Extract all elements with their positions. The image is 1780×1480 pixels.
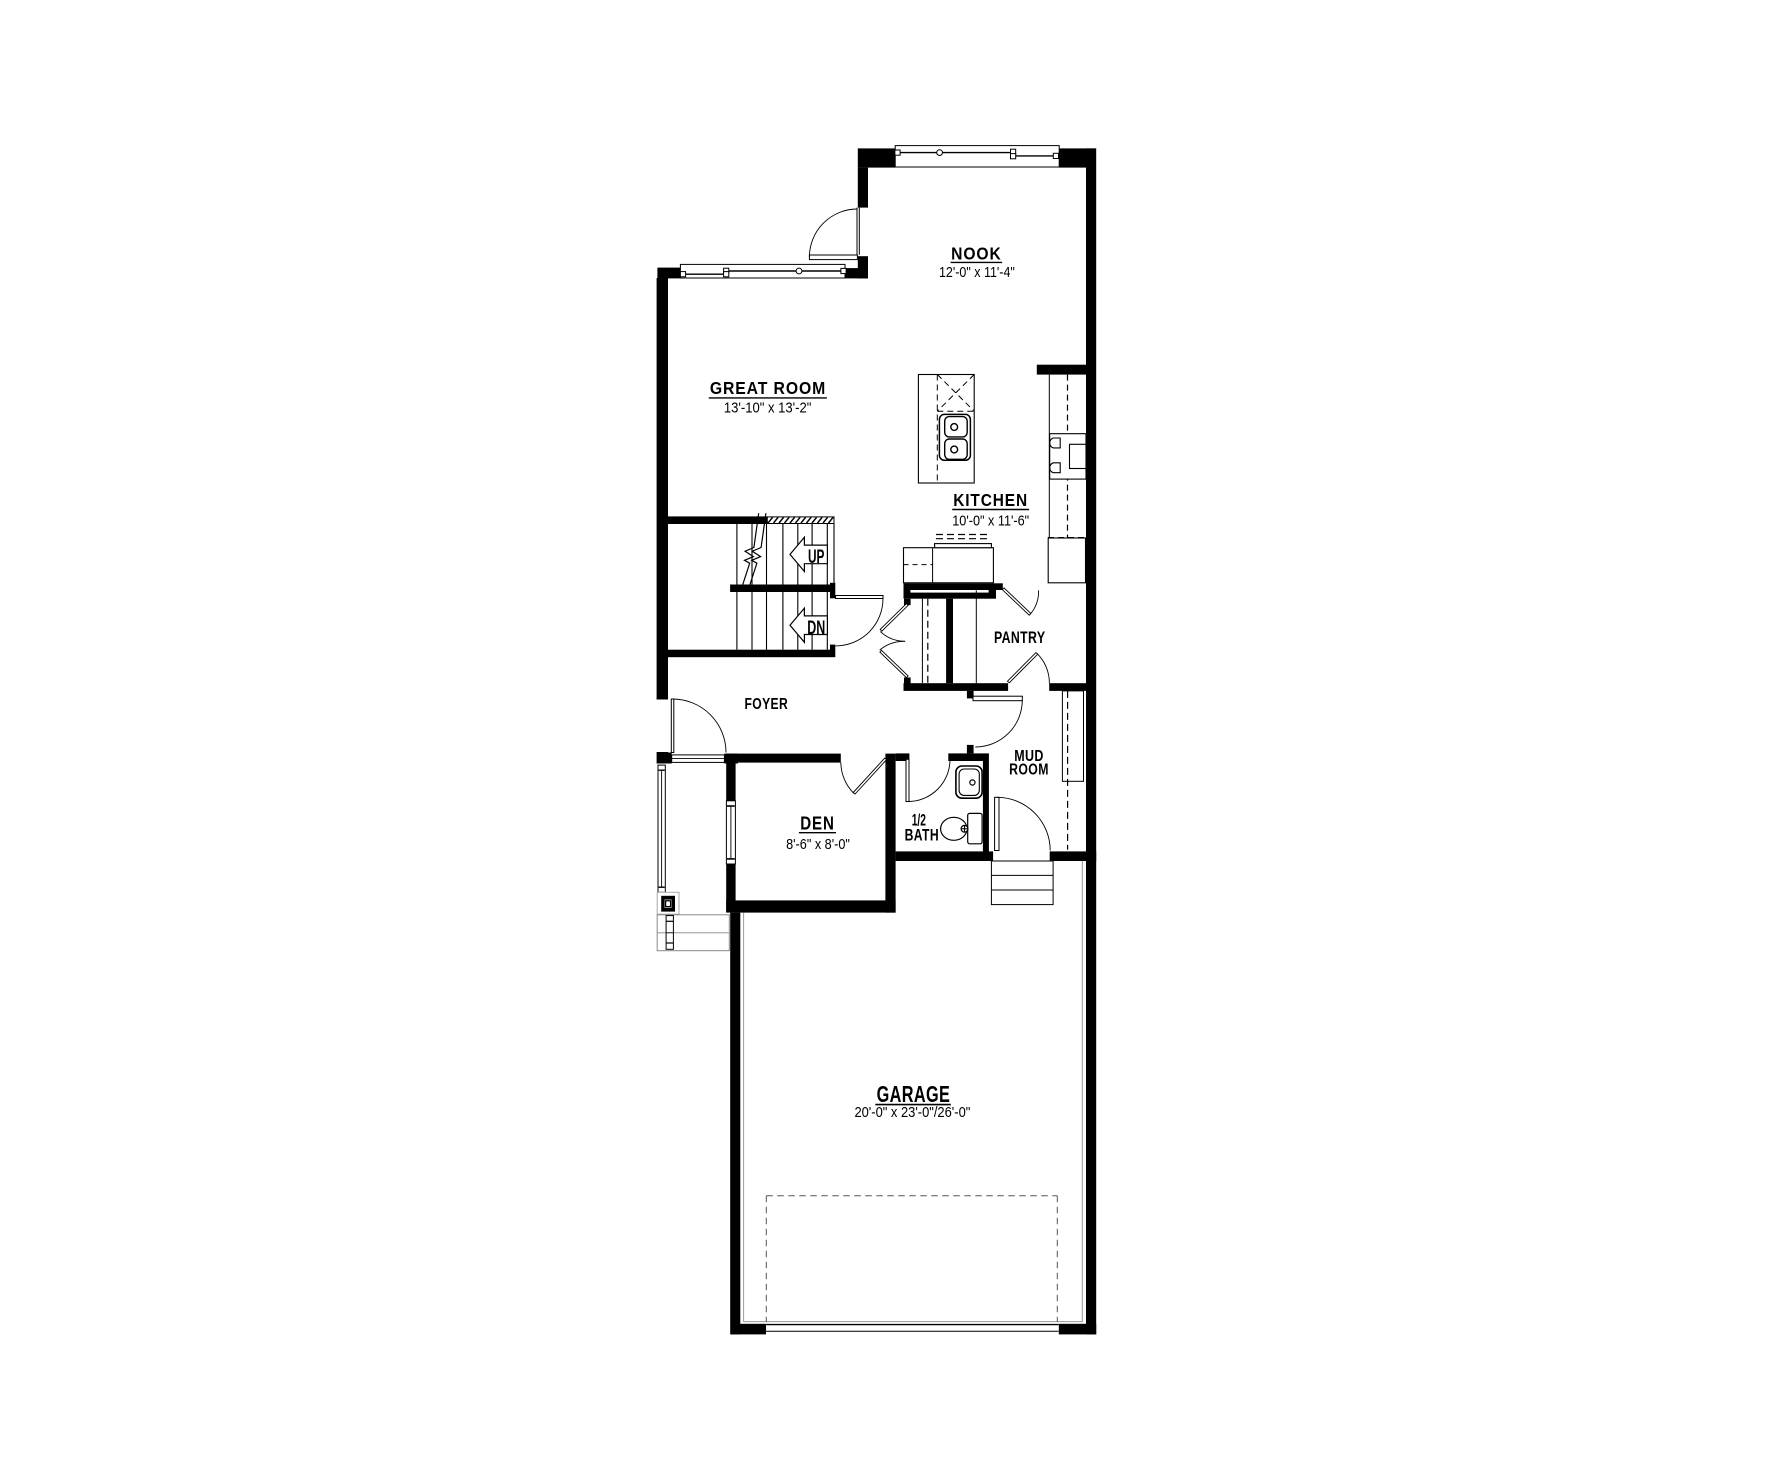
svg-text:ROOM: ROOM (1009, 762, 1049, 779)
svg-text:8'-6" x 8'-0": 8'-6" x 8'-0" (786, 837, 850, 853)
svg-text:UP: UP (808, 547, 825, 568)
svg-text:12'-0" x 11'-4": 12'-0" x 11'-4" (939, 265, 1015, 281)
svg-text:10'-0" x 11'-6": 10'-0" x 11'-6" (952, 514, 1029, 530)
svg-text:DEN: DEN (800, 814, 834, 834)
svg-text:20'-0" x 23'-0"/26'-0": 20'-0" x 23'-0"/26'-0" (854, 1105, 970, 1121)
svg-text:DN: DN (807, 618, 825, 639)
svg-text:BATH: BATH (905, 827, 939, 845)
svg-text:PANTRY: PANTRY (994, 628, 1046, 647)
svg-text:13'-10" x 13'-2": 13'-10" x 13'-2" (724, 400, 812, 416)
svg-text:KITCHEN: KITCHEN (953, 490, 1028, 510)
svg-text:FOYER: FOYER (745, 696, 789, 713)
svg-text:GARAGE: GARAGE (877, 1081, 951, 1107)
svg-text:NOOK: NOOK (951, 243, 1002, 263)
svg-text:GREAT ROOM: GREAT ROOM (710, 378, 826, 398)
